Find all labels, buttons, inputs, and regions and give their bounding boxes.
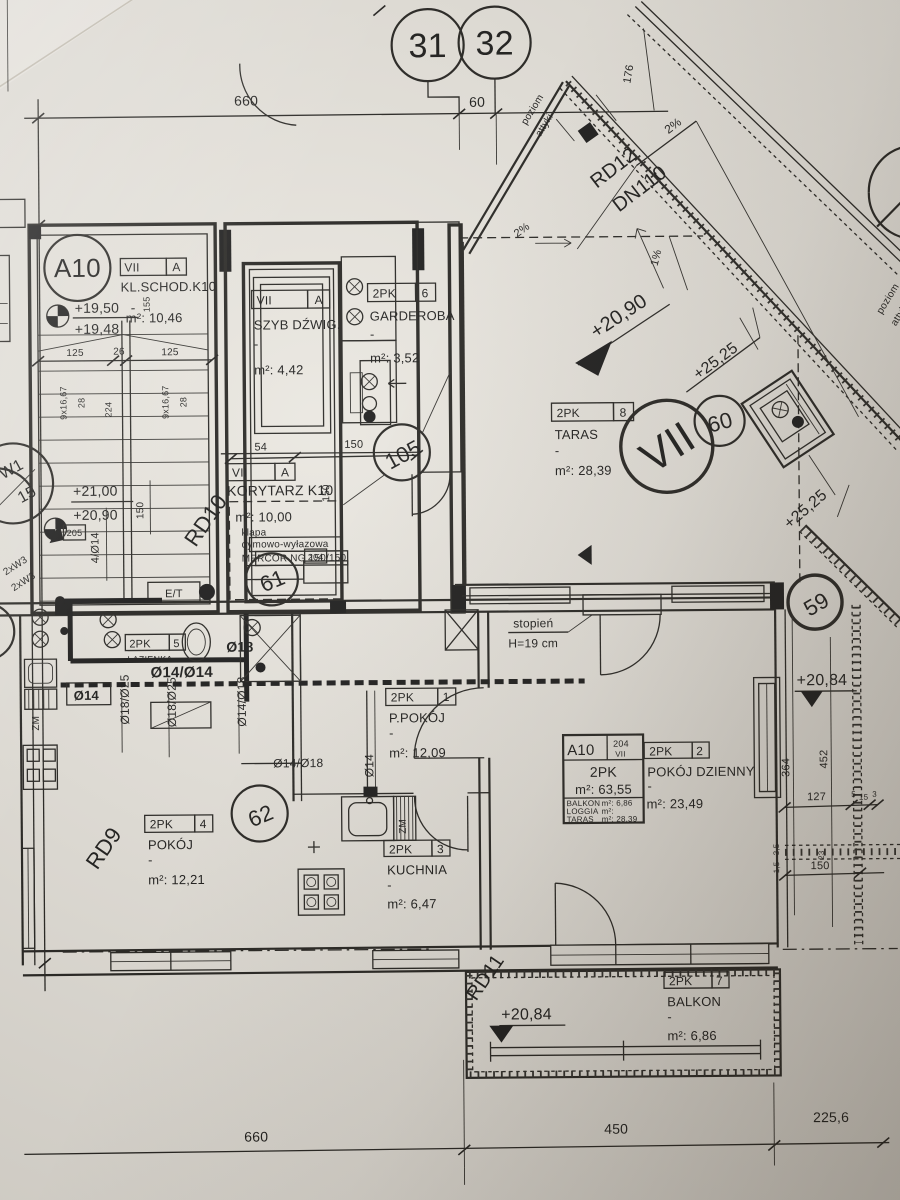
dim-top-660: 660 <box>234 92 258 108</box>
level-2100: +21,00 <box>73 483 118 499</box>
ppokoj-room: 2PK 1 P.POKÓJ - m²: 12,09 Ø14 <box>362 688 485 797</box>
stairs-room-name: KL.SCHOD.K10 <box>120 279 216 295</box>
neighbour-fixtures: ZM <box>0 596 69 790</box>
ppokoj-name: P.POKÓJ <box>389 710 445 725</box>
level-2525-a: +25,25 <box>691 340 742 384</box>
stair-tread-right: 28 <box>178 397 188 408</box>
elevator-area: m²: 4,42 <box>254 362 303 377</box>
dim-3: 3 <box>872 790 877 799</box>
slope-2pct-b: 2% <box>512 221 532 240</box>
elevator-zone-tag: A <box>315 293 323 307</box>
table-taras-key: TARAS <box>567 815 594 824</box>
lazienka-type-tag: 2PK <box>129 638 151 650</box>
kuchnia-area: m²: 6,47 <box>387 896 436 911</box>
step-note: stopień <box>513 616 553 630</box>
stair-rise-left: 9x16,67 <box>58 386 68 420</box>
ppokoj-type-tag: 2PK <box>391 690 414 704</box>
window-mark-15: 15 <box>15 483 39 507</box>
dim-364: 364 <box>780 758 792 777</box>
dim-452: 452 <box>818 750 830 769</box>
table-taras-val: m²: 28,39 <box>602 815 638 824</box>
level-2090: +20,90 <box>73 507 118 523</box>
dzienny-area: m²: 23,49 <box>647 796 704 811</box>
hatch-note-1: klapa <box>241 527 266 538</box>
stairs-zone-tag: A <box>172 260 180 274</box>
pokoj-type-tag: 2PK <box>150 817 173 831</box>
stair-tread-left: 28 <box>76 398 86 409</box>
dzienny-room: 2PK 2 POKÓJ DZIENNY - m²: 23,49 A10 204 … <box>508 594 756 948</box>
table-apartment-area: m²: 63,55 <box>575 782 632 797</box>
dim-bottom-450: 450 <box>604 1121 628 1137</box>
garderoba-room: 2PK 6 GARDEROBA - m²: 3,52 <box>367 222 464 613</box>
apartment-bubble-a10: A10 <box>54 253 101 283</box>
dim-bottom-660: 660 <box>244 1128 268 1144</box>
room-number-205: 205 <box>67 528 83 538</box>
table-apartment-id: A10 <box>567 742 594 759</box>
window-mark-w1: W1 <box>0 456 26 483</box>
table-floor: VII <box>615 750 625 759</box>
level-right-2084: +20,84 <box>797 672 848 689</box>
riser-bubble-59: 59 <box>799 587 833 621</box>
taras-area-label: m²: 28,39 <box>555 463 612 478</box>
dim-15b: 1,5 <box>772 861 781 873</box>
taras-area: +20,90 2PK 8 TARAS - m²: 28,39 VII 60 +2… <box>450 0 900 632</box>
appliance-zm-left: ZM <box>31 716 42 731</box>
lazienka-num-tag: 5 <box>173 638 179 650</box>
lazienka-name: ŁAZIENKA <box>127 654 172 664</box>
stairs-area: m²: 10,46 <box>126 310 183 325</box>
dim-5: 5 <box>851 790 856 799</box>
kuchnia-room: 2PK 3 KUCHNIA - m²: 6,47 ZM <box>298 796 469 915</box>
korytarz-zone-tag: A <box>281 465 289 479</box>
table-unit-number: 204 <box>613 739 629 749</box>
section-bubble-32: 32 <box>475 24 514 62</box>
dim-54: 54 <box>254 441 267 453</box>
dzienny-type-tag: 2PK <box>649 744 672 758</box>
step-height-note: H=19 cm <box>508 636 558 650</box>
riser-bubble-61: 61 <box>256 564 289 597</box>
level-taras-2090: +20,90 <box>587 290 652 343</box>
note-2xw3-b: 2xW3 <box>10 570 38 594</box>
elevator-dash: - <box>254 336 259 351</box>
section-bubble-31: 31 <box>408 27 447 65</box>
garderoba-area: m²: 3,52 <box>370 350 419 365</box>
pipe-o1414: Ø14/Ø14 <box>150 664 213 681</box>
level-balkon-2084: +20,84 <box>501 1006 552 1023</box>
garderoba-dash: - <box>370 327 375 342</box>
pipe-o14-box: Ø14 <box>74 688 100 703</box>
taras-type-tag: 2PK <box>556 406 579 420</box>
pokoj-area: m²: 12,21 <box>148 872 205 887</box>
elevator-floor-tag: VII <box>257 293 272 307</box>
kuchnia-type-tag: 2PK <box>389 842 412 856</box>
slope-1pct: 1% <box>649 248 665 267</box>
dzienny-name: POKÓJ DZIENNY <box>647 764 755 780</box>
floor-plan-drawing: 31 32 660 60 660 450 225,6 A <box>0 0 900 1200</box>
kuchnia-name: KUCHNIA <box>387 862 447 877</box>
dim-35: 3,5 <box>772 843 781 855</box>
garderoba-type-tag: 2PK <box>373 286 396 300</box>
balkon-type-tag: 2PK <box>669 974 692 988</box>
dim-125a: 125 <box>66 348 84 359</box>
taras-name: TARAS <box>555 427 599 442</box>
pokoj-room: 2PK 4 POKÓJ - m²: 12,21 RD9 62 <box>74 63 302 888</box>
pokoj-num-tag: 4 <box>200 817 207 831</box>
loggia-strip: 59 +20,84 364 452 127 5 15 3 23 3,5 1,5 … <box>770 574 900 949</box>
dzienny-num-tag: 2 <box>696 744 703 758</box>
dim-224: 224 <box>103 402 113 418</box>
appliance-zm: ZM <box>398 819 409 834</box>
ppokoj-dash: - <box>389 725 394 740</box>
kuchnia-dash: - <box>387 877 392 892</box>
pokoj-name: POKÓJ <box>148 837 193 852</box>
pokoj-dash: - <box>148 852 153 867</box>
balkon-name: BALKON <box>667 994 721 1009</box>
dim-176: 176 <box>621 64 636 85</box>
dim-150a: 150 <box>344 439 363 451</box>
balkon-dash: - <box>667 1009 672 1024</box>
riser-bubble-62: 62 <box>244 800 277 833</box>
level-1950: +19,50 <box>75 300 120 316</box>
elevator-name: SZYB DŹWIG. <box>254 317 341 333</box>
table-apartment-type: 2PK <box>590 764 618 780</box>
dim-150-right: 150 <box>811 860 830 872</box>
taras-dash: - <box>555 443 560 458</box>
pipe-o1825-a: Ø18/Ø25 <box>118 674 132 724</box>
dim-127: 127 <box>807 791 826 803</box>
taras-num-tag: 8 <box>619 406 626 420</box>
paper-crease <box>0 0 146 99</box>
balkon-num-tag: 7 <box>716 974 723 988</box>
roof-drain-rd9: RD9 <box>81 823 127 874</box>
pipe-4-o14: 4/Ø14 <box>89 532 101 563</box>
dim-26: 26 <box>113 347 125 358</box>
riser-bubble-60: 60 <box>705 407 736 438</box>
stair-rise-right: 9x16,67 <box>160 385 170 419</box>
stairs-floor-tag: VII <box>124 260 139 274</box>
korytarz-floor-tag: VII <box>232 466 247 480</box>
room-number-204: 204 <box>308 552 324 562</box>
et-box: E/T <box>165 588 183 600</box>
dzienny-dash: - <box>647 778 652 793</box>
lazienka-room: 2PK 5 ŁAZIENKA Ø14/Ø14 Ø18 Ø14 Ø18/Ø25 Ø… <box>66 610 323 772</box>
korytarz-name: KORYTARZ K10 <box>227 482 333 499</box>
pipe-o14-vert: Ø14 <box>362 754 376 778</box>
floor-plan-photo: 31 32 660 60 660 450 225,6 A <box>0 0 900 1200</box>
dim-125b: 125 <box>161 347 179 358</box>
dim-top-60: 60 <box>469 94 485 110</box>
floor-bubble-vii: VII <box>632 412 704 483</box>
dim-bottom-2256: 225,6 <box>813 1109 849 1125</box>
roof-drain-rd10: RD10 <box>179 490 232 551</box>
pipe-o1418-a: Ø14/Ø18 <box>235 676 249 726</box>
balkon-area-label: m²: 6,86 <box>667 1028 716 1043</box>
garderoba-name: GARDEROBA <box>370 308 455 324</box>
korytarz-area: m²: 10,00 <box>235 509 292 524</box>
west-annex: W1 15 2xW3 2xW3 +21,00 +20,90 205 4/Ø14 … <box>0 442 151 594</box>
dim-150-vert: 150 <box>321 484 332 502</box>
dim-150-left: 150 <box>135 502 146 520</box>
slope-2pct-a: 2% <box>662 115 685 137</box>
dim-15: 15 <box>859 793 869 802</box>
garderoba-num-tag: 6 <box>422 286 429 300</box>
korytarz-room: 54 150 VII A KORYTARZ K10 m²: 10,00 klap… <box>146 371 592 606</box>
